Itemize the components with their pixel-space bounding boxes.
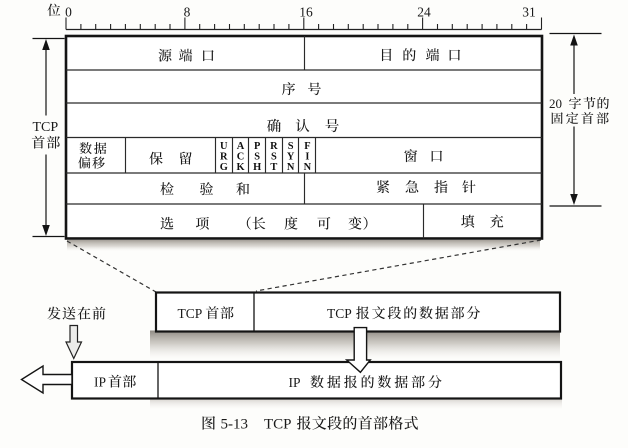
svg-text:8: 8 [184,5,191,20]
svg-text:P: P [254,141,261,152]
svg-text:C: C [237,151,245,162]
svg-text:TCP: TCP [327,306,352,321]
svg-text:A: A [237,141,245,152]
svg-text:S: S [271,151,277,162]
svg-text:16: 16 [299,5,313,20]
svg-text:F: F [304,141,310,152]
svg-text:N: N [287,162,295,173]
svg-text:N: N [304,162,312,173]
svg-text:31: 31 [522,5,536,20]
svg-text:H: H [253,162,261,173]
svg-text:24: 24 [417,5,431,20]
svg-text:R: R [270,141,278,152]
svg-text:5-13: 5-13 [221,417,249,433]
svg-text:0: 0 [65,5,72,20]
svg-text:G: G [220,162,228,173]
svg-text:S: S [254,151,260,162]
svg-text:Y: Y [287,151,295,162]
svg-text:I: I [305,151,309,162]
svg-text:TCP: TCP [32,120,58,135]
svg-text:20: 20 [549,96,562,111]
svg-text:TCP: TCP [264,417,292,433]
svg-text:T: T [270,162,277,173]
svg-text:S: S [288,141,294,152]
svg-text:U: U [220,141,228,152]
svg-text:IP: IP [289,375,301,390]
svg-text:IP: IP [94,375,106,390]
svg-text:K: K [236,162,244,173]
svg-text:R: R [220,151,228,162]
svg-text:TCP: TCP [178,306,203,321]
